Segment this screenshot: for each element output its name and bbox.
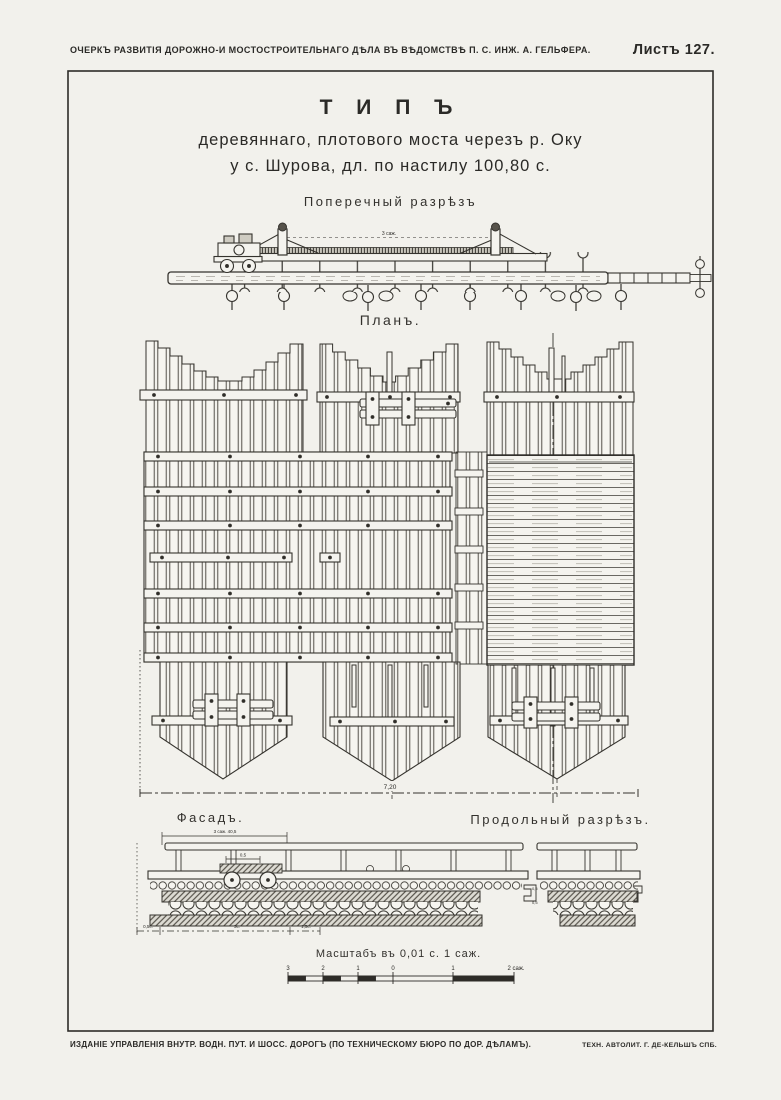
facade-drawing: 3 саж. 40,5 [137,829,642,935]
cross-section-drawing: 3 саж. [168,223,711,311]
scale-tick-1: 2 [321,966,325,972]
rail-post-right [491,229,500,255]
plan-drawing: 7,20 [140,333,638,803]
scale-tick-2: 1 [356,966,360,972]
raft-log-beam [168,272,608,284]
bracket-dim: 3 саж. 40,5 [214,829,237,834]
long-deck-bar [537,871,640,879]
facade-dim-right: 1,5с. [301,924,311,929]
long-handrail [537,843,637,850]
joint-dim-1: 0,5 [532,886,538,891]
rail-post-left [278,229,287,255]
scale-tick-5: 2 саж. [507,966,524,972]
joint-dim-2: 0,5 [532,900,538,905]
span-dim: 3 саж. [382,231,396,237]
cart-dim: 0,5 [240,853,247,858]
scale-tick-0: 3 [286,966,290,972]
scale-bar: 3 2 1 0 1 2 саж. [286,966,525,984]
plan-width-dim: 7,20 [384,784,397,791]
facade-dim-left: 0,5с. [143,924,153,929]
plan-joint-strip [455,452,487,664]
scale-tick-4: 1 [451,966,455,972]
facade-handrail [165,843,523,850]
facade-deck-bar [148,871,528,879]
plan-planked-deck [487,455,634,665]
scale-tick-3: 0 [391,966,395,972]
lithograph-sheet: ОЧЕРКЪ РАЗВИТІЯ ДОРОЖНО-И МОСТОСТРОИТЕЛЬ… [0,0,781,1100]
bridge-drawing: 3 саж. [0,0,781,1100]
facade-dim-mid: 3с. [234,924,240,929]
